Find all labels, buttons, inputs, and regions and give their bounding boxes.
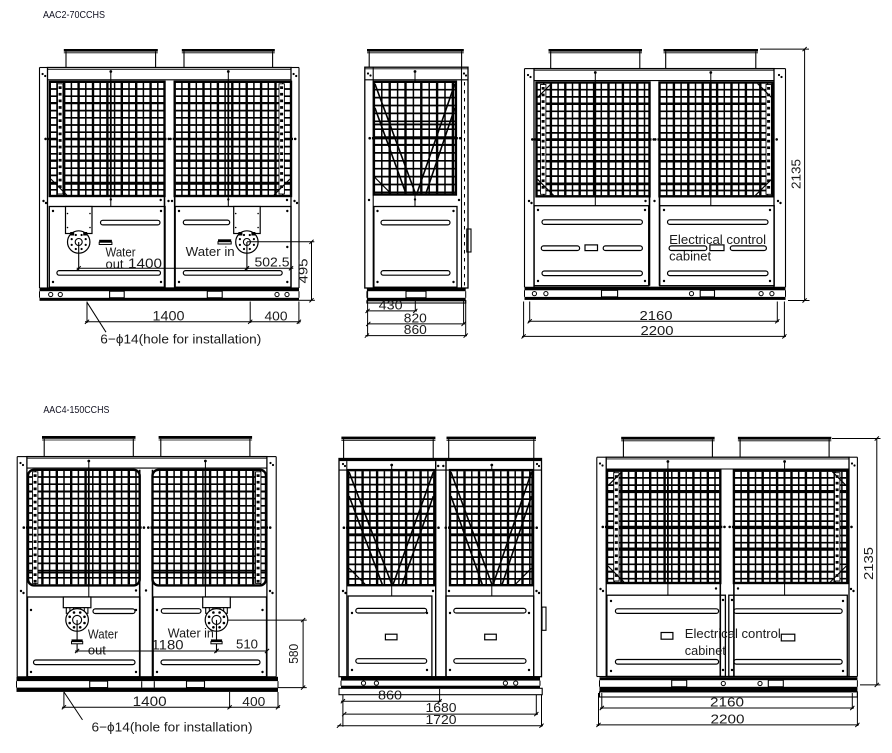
svg-text:1720: 1720 (426, 713, 457, 727)
svg-text:Water: Water (88, 628, 118, 642)
svg-text:502.5: 502.5 (255, 255, 290, 269)
svg-text:AAC4-150CCHS: AAC4-150CCHS (43, 404, 109, 416)
svg-text:400: 400 (242, 694, 265, 709)
svg-text:2135: 2135 (790, 159, 804, 189)
svg-text:6−ϕ14(hole for installation): 6−ϕ14(hole for installation) (92, 720, 253, 735)
svg-text:Electrical control: Electrical control (669, 233, 766, 247)
svg-text:2200: 2200 (641, 323, 674, 338)
svg-text:2135: 2135 (862, 547, 876, 580)
svg-text:580: 580 (287, 644, 301, 664)
svg-text:Water in: Water in (186, 245, 235, 259)
svg-text:510: 510 (236, 637, 258, 652)
svg-text:2160: 2160 (640, 308, 673, 323)
svg-text:430: 430 (379, 299, 403, 313)
svg-text:1400: 1400 (128, 256, 162, 271)
svg-text:AAC2-70CCHS: AAC2-70CCHS (43, 9, 105, 21)
svg-text:2200: 2200 (711, 711, 745, 726)
svg-text:6−ϕ14(hole for installation): 6−ϕ14(hole for installation) (100, 332, 261, 347)
svg-text:860: 860 (378, 689, 402, 703)
svg-text:Electrical control: Electrical control (685, 627, 781, 641)
svg-text:400: 400 (265, 308, 288, 323)
svg-text:cabinet: cabinet (685, 644, 727, 658)
svg-text:2160: 2160 (710, 695, 744, 710)
svg-text:1400: 1400 (133, 694, 167, 709)
svg-text:1400: 1400 (153, 309, 185, 324)
svg-text:1180: 1180 (152, 638, 184, 653)
svg-text:495: 495 (297, 258, 311, 283)
svg-text:out: out (106, 258, 125, 272)
svg-text:cabinet: cabinet (669, 250, 712, 264)
svg-text:860: 860 (404, 323, 427, 337)
